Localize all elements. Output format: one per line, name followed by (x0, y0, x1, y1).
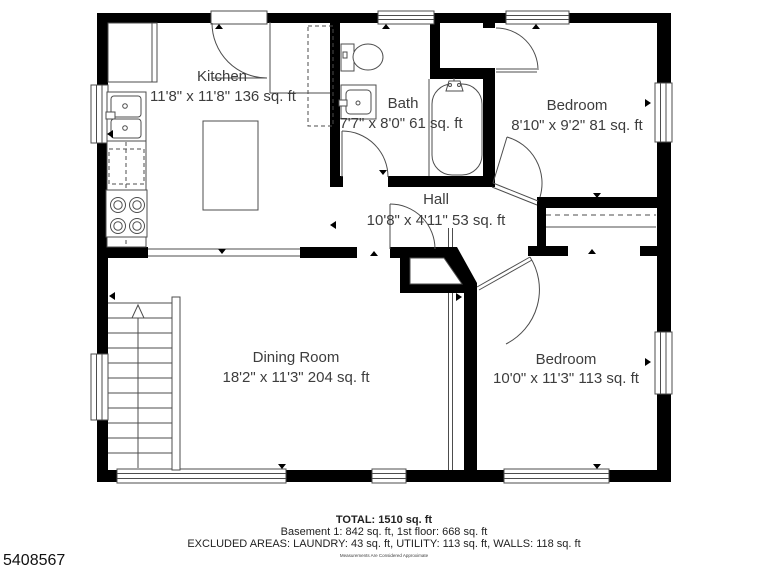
linen-closet-shelf (546, 215, 656, 227)
kitchen-dims: 11'8" x 11'8" 136 sq. ft (150, 88, 297, 105)
window-bedroom2-right (655, 332, 672, 394)
disclaimer-text: Measurements Are Considered Approximate (0, 553, 768, 558)
walls (97, 13, 671, 482)
bedroom1-dims: 8'10" x 9'2" 81 sq. ft (511, 117, 643, 134)
kitchen-label: Kitchen (197, 68, 247, 85)
bedroom1-label: Bedroom (547, 97, 608, 114)
window-bedroom1-right (655, 83, 672, 142)
kitchen-island (203, 121, 258, 210)
wall-mid-center (300, 247, 357, 258)
stair-rail (172, 297, 180, 470)
hall-label: Hall (423, 191, 449, 208)
wall-closet-left (430, 23, 440, 68)
bedroom1-door-swing (492, 137, 542, 205)
bath-door-opening (343, 175, 388, 188)
floor-plan-drawing: Kitchen 11'8" x 11'8" 136 sq. ft Bath 7'… (0, 0, 768, 576)
dining-room-label: Dining Room (253, 349, 340, 366)
kitchen-counter-edge (270, 22, 330, 93)
listing-id: 5408567 (3, 552, 65, 570)
staircase (108, 297, 180, 470)
window-kitchen-left (91, 85, 108, 143)
window-bath-top (378, 11, 434, 24)
wall-dining-bedroom (464, 283, 477, 470)
bedroom2-label: Bedroom (536, 351, 597, 368)
entry-door-opening-top (211, 11, 267, 24)
closet-door-opening (482, 28, 496, 68)
dining-room-dims: 18'2" x 11'3" 204 sq. ft (222, 369, 370, 386)
floor-plan-page: Kitchen 11'8" x 11'8" 136 sq. ft Bath 7'… (0, 0, 768, 576)
wall-linen-bottom-right (640, 246, 671, 256)
bedroom2-door-swing (477, 257, 539, 344)
hall-dims: 10'8" x 4'11" 53 sq. ft (367, 212, 507, 229)
window-bedroom2-bottom (504, 469, 609, 483)
wall-mid-left (97, 247, 148, 258)
floors-area-text: Basement 1: 842 sq. ft, 1st floor: 668 s… (0, 526, 768, 538)
window-bedroom1-top (506, 11, 569, 24)
stove (106, 190, 147, 237)
excluded-areas-text: EXCLUDED AREAS: LAUNDRY: 43 sq. ft, UTIL… (0, 538, 768, 550)
bathroom-vanity (339, 85, 376, 119)
window-dining-bottom (117, 469, 286, 483)
bath-label: Bath (388, 95, 419, 112)
total-area-text: TOTAL: 1510 sq. ft (0, 514, 768, 526)
bath-dims: 7'7" x 8'0" 61 sq. ft (339, 115, 463, 132)
window-small-bottom (372, 469, 406, 483)
toilet (341, 44, 383, 71)
bedroom2-dims: 10'0" x 11'3" 113 sq. ft (493, 370, 640, 387)
wall-linen-bottom-left (528, 246, 568, 256)
refrigerator (308, 26, 333, 126)
window-dining-left (91, 354, 108, 420)
closet-door-swing (496, 28, 538, 72)
wall-bedroom1-bottom (537, 197, 671, 208)
kitchen-cabinet (108, 23, 157, 82)
stair-up-arrow (132, 305, 144, 318)
